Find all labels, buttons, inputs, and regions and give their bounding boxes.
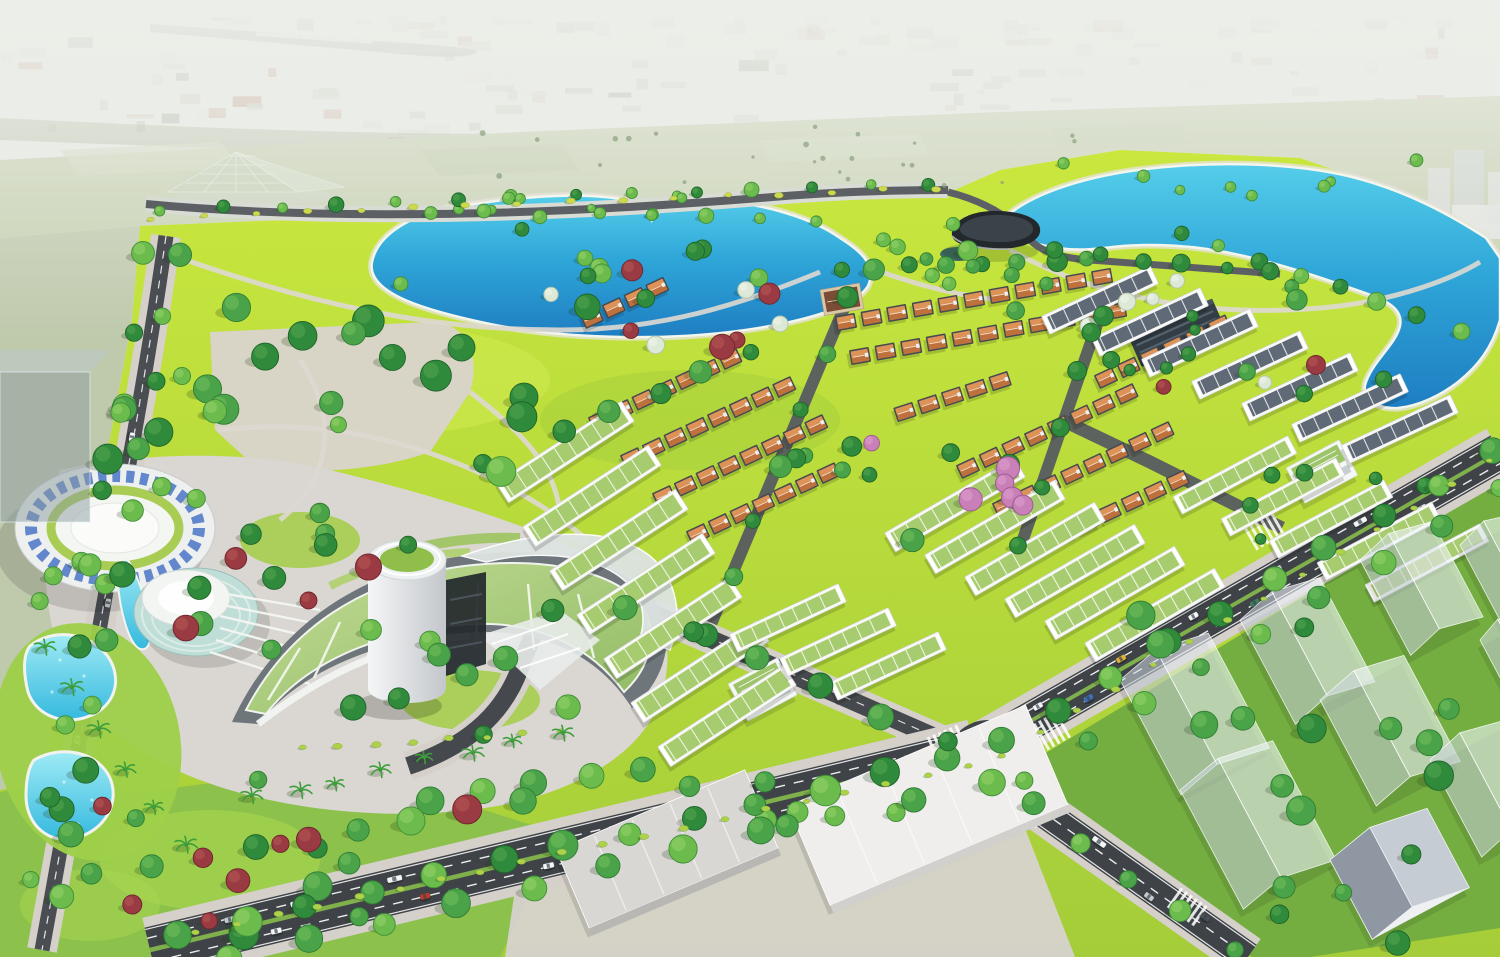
field-tree-dot xyxy=(803,142,809,148)
field-tree-dot xyxy=(613,136,618,141)
field-tree-dot xyxy=(942,183,947,188)
field-tree-dot xyxy=(598,163,602,167)
field-tree-dot xyxy=(683,180,687,184)
field-tree-dot xyxy=(626,136,632,142)
field-tree-dot xyxy=(838,170,841,173)
field-tree-dot xyxy=(1000,181,1003,184)
field-tree-dot xyxy=(849,156,854,161)
field-tree-dot xyxy=(846,177,851,182)
field-tree-dot xyxy=(751,155,754,158)
field-tree-dot xyxy=(820,156,825,161)
field-tree-dot xyxy=(813,160,816,163)
masterplan-rendering: Aerial 3D architectural rendering of a p… xyxy=(0,0,1500,957)
field-tree-dot xyxy=(856,132,861,137)
field-tree-dot xyxy=(813,125,817,129)
masterplan-stage: Aerial 3D architectural rendering of a p… xyxy=(0,0,1500,957)
field-tree-dot xyxy=(535,137,540,142)
field-tree-dot xyxy=(1070,134,1074,138)
field-tree-dot xyxy=(913,141,916,144)
field-tree-dot xyxy=(901,163,905,167)
field-tree-dot xyxy=(496,173,502,179)
field-tree-dot xyxy=(1072,139,1076,143)
field-tree-dot xyxy=(480,130,486,136)
field-tree-dot xyxy=(654,131,658,135)
field-tree-dot xyxy=(910,163,915,168)
